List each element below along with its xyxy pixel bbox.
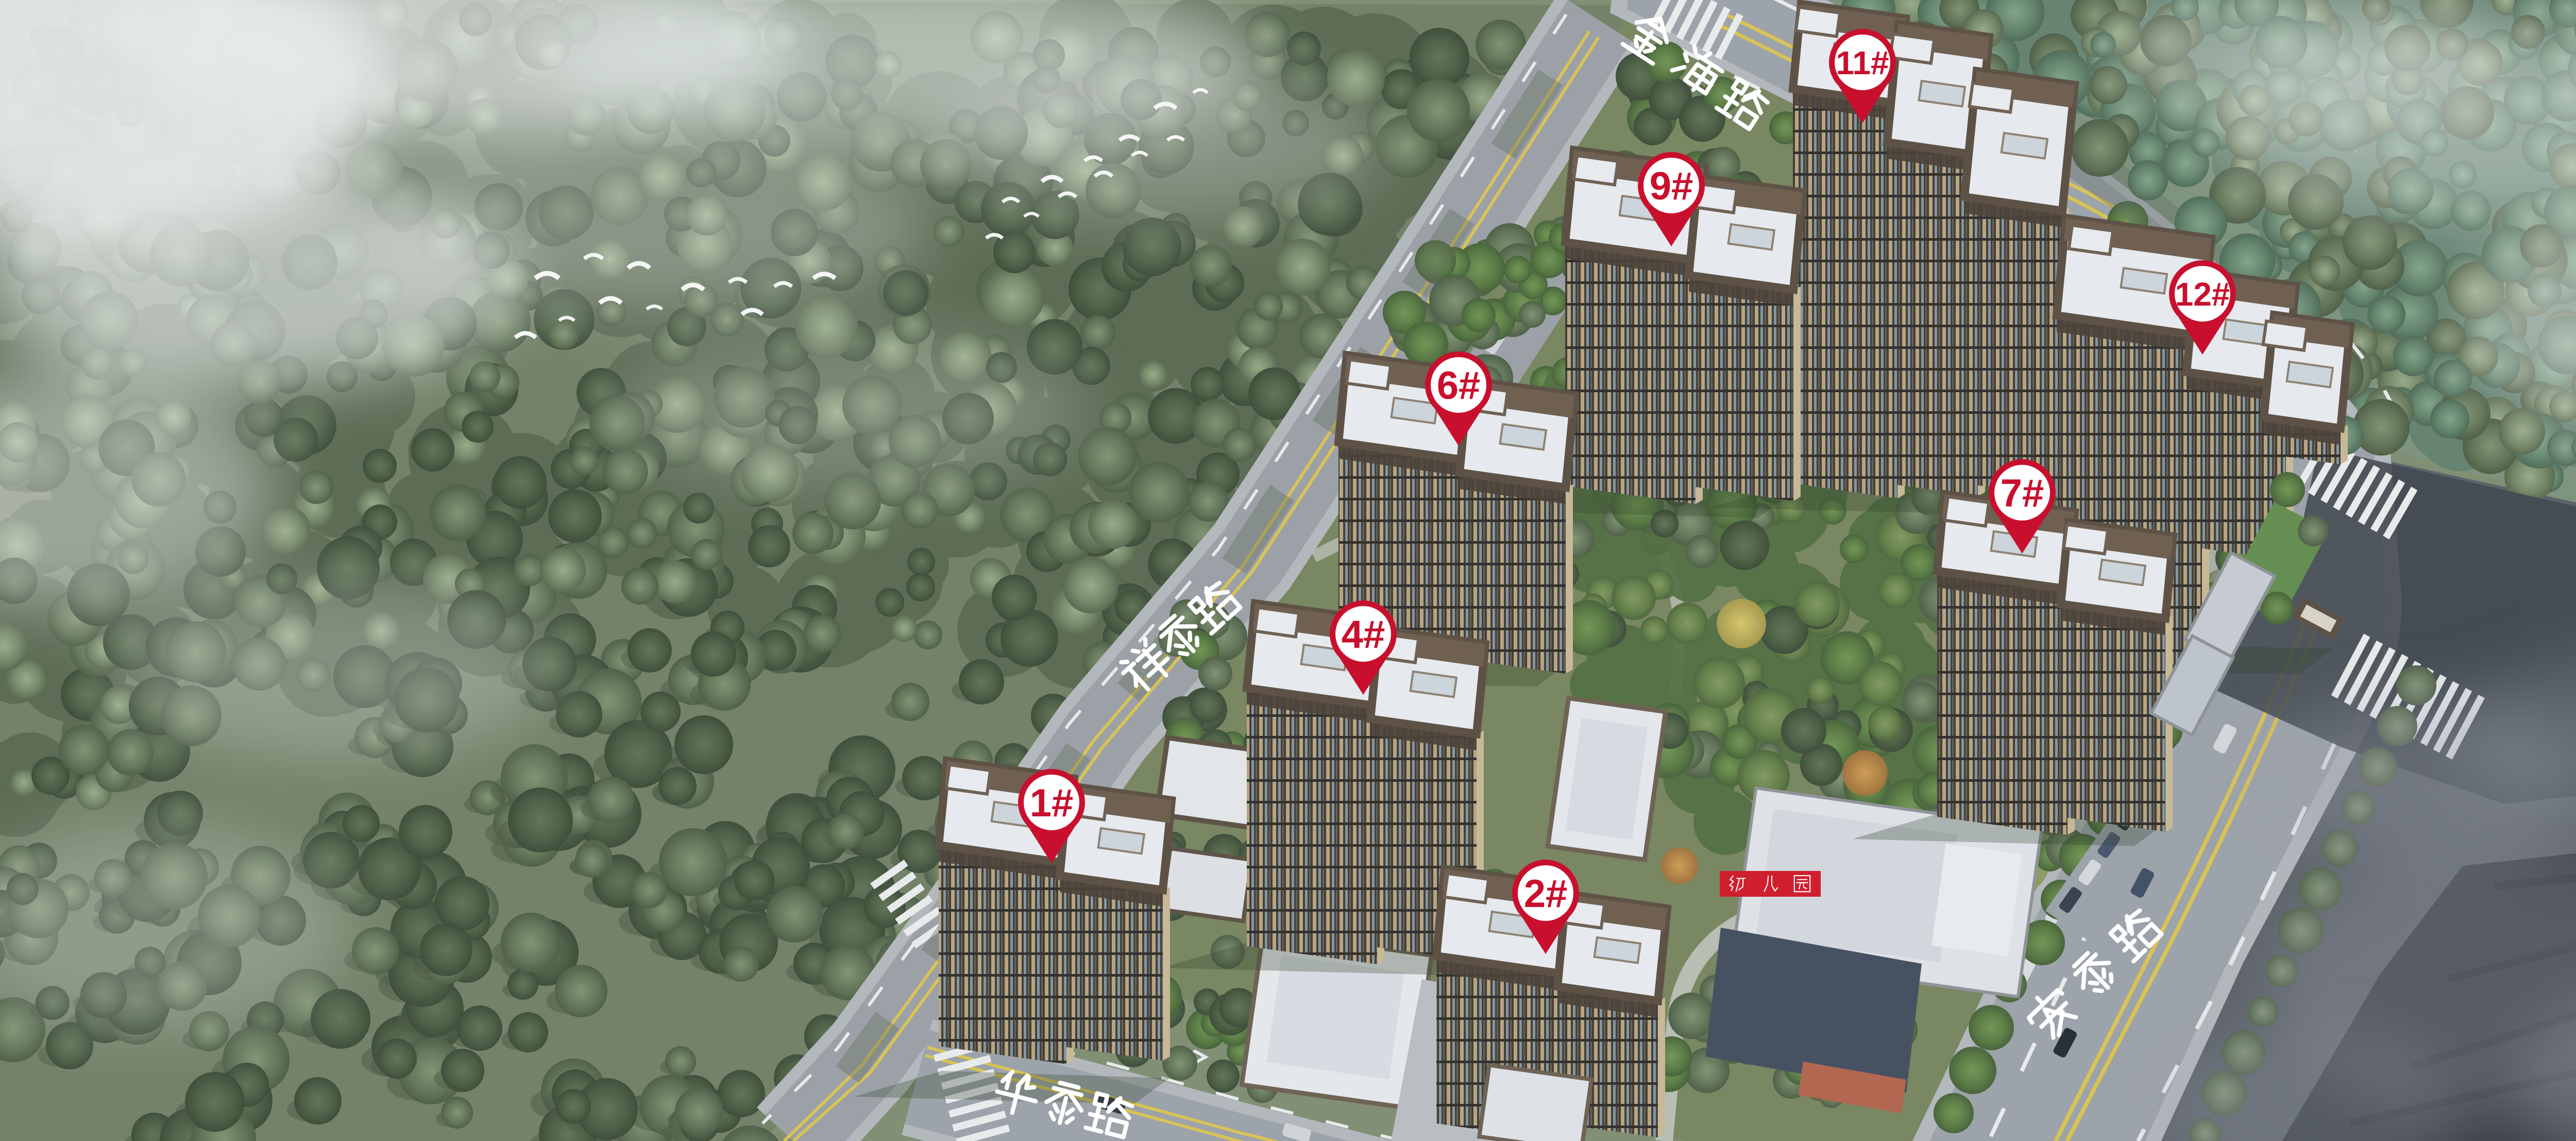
svg-text:1#: 1#	[1030, 781, 1074, 825]
svg-text:9#: 9#	[1650, 164, 1693, 208]
svg-text:4#: 4#	[1342, 613, 1385, 657]
svg-text:11#: 11#	[1836, 44, 1889, 81]
svg-text:2#: 2#	[1524, 872, 1568, 916]
svg-text:7#: 7#	[2001, 472, 2044, 515]
svg-text:6#: 6#	[1437, 364, 1481, 408]
svg-text:12#: 12#	[2175, 276, 2230, 313]
